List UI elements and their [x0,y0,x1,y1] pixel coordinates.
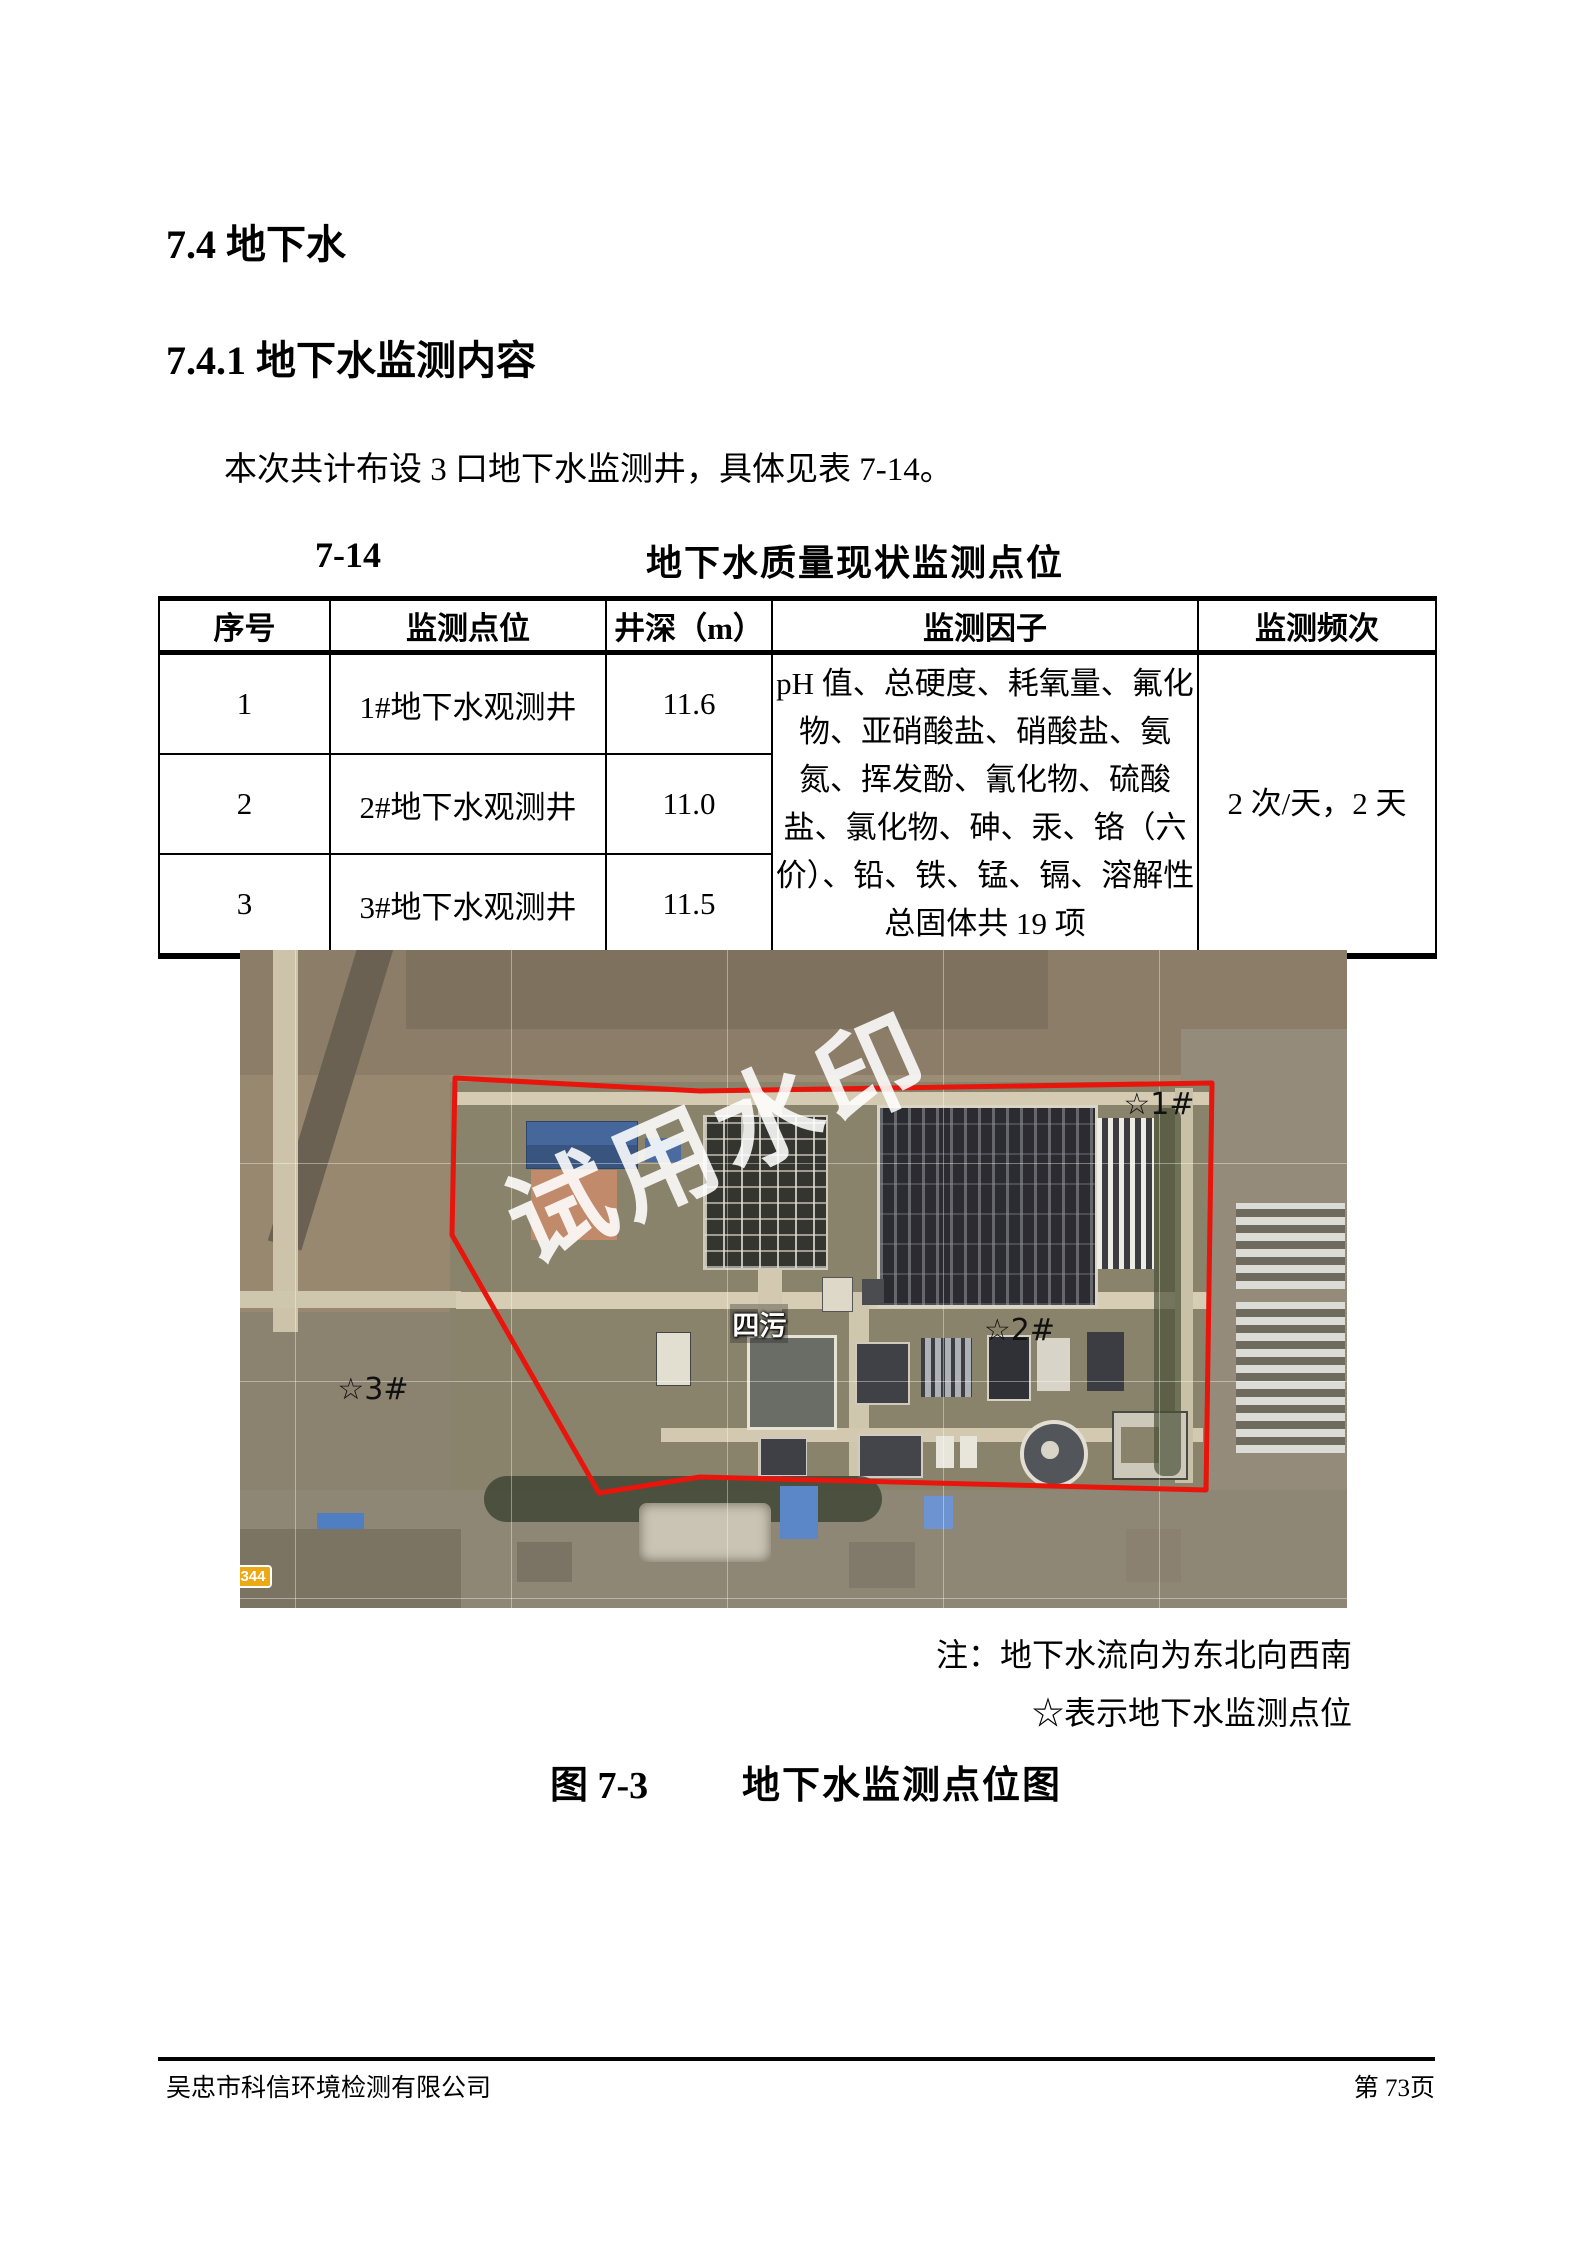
cell-seq: 2 [159,754,330,854]
cell-seq: 3 [159,854,330,956]
section-heading: 7.4 地下水 [166,212,346,270]
header-factors: 监测因子 [772,599,1198,653]
subsection-heading: 7.4.1 地下水监测内容 [166,328,536,386]
footer-divider [158,2057,1435,2061]
monitoring-points-table: 序号 监测点位 井深（m） 监测因子 监测频次 1 1#地下水观测井 11.6 … [158,596,1437,959]
footer-company: 吴忠市科信环境检测有限公司 [166,2068,491,2104]
header-depth: 井深（m） [606,599,772,653]
header-seq: 序号 [159,599,330,653]
cell-depth: 11.5 [606,854,772,956]
header-point: 监测点位 [330,599,606,653]
header-frequency: 监测频次 [1198,599,1436,653]
well-marker-1: ☆1# [1123,1087,1194,1122]
table-title: 地下水质量现状监测点位 [646,534,1064,586]
figure-note-flow-direction: 注：地下水流向为东北向西南 [936,1630,1352,1676]
cell-seq: 1 [159,653,330,755]
cell-factors: pH 值、总硬度、耗氧量、氟化物、亚硝酸盐、硝酸盐、氨氮、挥发酚、氰化物、硫酸盐… [772,653,1198,957]
plant-name-label: 四污 [730,1304,788,1343]
figure-caption-number: 图 7-3 [550,1754,648,1809]
table-header-row: 序号 监测点位 井深（m） 监测因子 监测频次 [159,599,1436,653]
cell-point: 1#地下水观测井 [330,653,606,755]
satellite-map: ☆1# ☆2# ☆3# 四污 344 试用水印 [240,950,1347,1608]
cell-frequency: 2 次/天，2 天 [1198,653,1436,957]
table-row: 1 1#地下水观测井 11.6 pH 值、总硬度、耗氧量、氟化物、亚硝酸盐、硝酸… [159,653,1436,755]
cell-point: 3#地下水观测井 [330,854,606,956]
footer-page-number: 第 73页 [1354,2068,1435,2104]
cell-depth: 11.6 [606,653,772,755]
road-number-badge: 344 [240,1565,272,1588]
table-number: 7-14 [315,534,381,576]
figure-caption-title: 地下水监测点位图 [742,1754,1062,1809]
figure-note-marker-legend: ☆表示地下水监测点位 [1032,1688,1352,1734]
well-marker-2: ☆2# [984,1313,1055,1348]
well-marker-3: ☆3# [337,1372,408,1407]
body-paragraph: 本次共计布设 3 口地下水监测井，具体见表 7-14。 [158,448,1435,493]
document-page: 7.4 地下水 7.4.1 地下水监测内容 本次共计布设 3 口地下水监测井，具… [0,0,1587,2245]
cell-depth: 11.0 [606,754,772,854]
cell-point: 2#地下水观测井 [330,754,606,854]
